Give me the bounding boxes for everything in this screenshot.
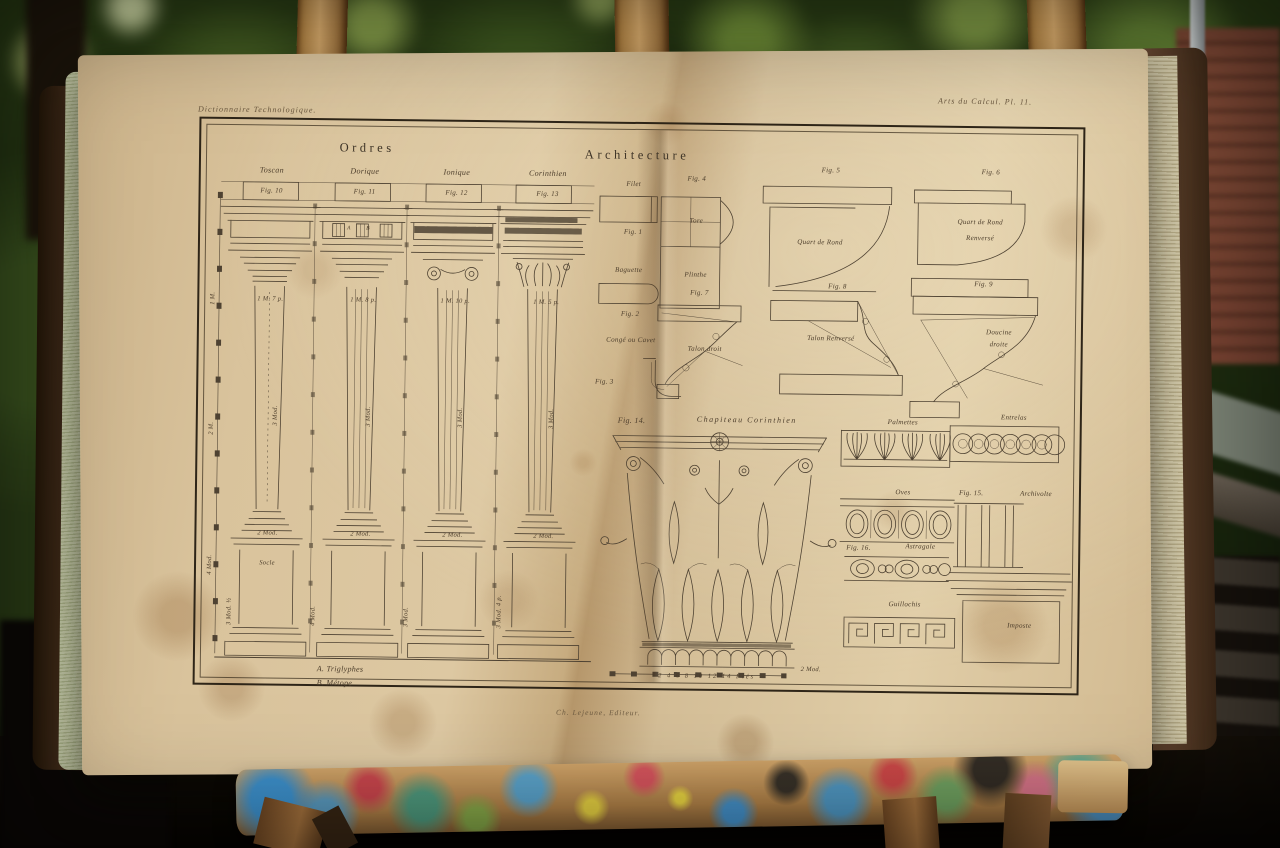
pedestal-dim-toscan: 3 Mod. ½ bbox=[225, 598, 232, 625]
pedestal-dim-corinthien: 3 Mod. 4 p. bbox=[495, 595, 502, 628]
fig-number-16: Fig. 16. bbox=[846, 544, 882, 552]
ornament-label-palmettes: Palmettes bbox=[850, 418, 956, 427]
moulding-label-conge: Congé ou Cavet bbox=[605, 336, 657, 345]
fig-number-10: Fig. 10 bbox=[244, 186, 300, 195]
shaft-dim-corinthien: 3 Mod. bbox=[548, 409, 555, 429]
capital-dim-dorique: 1 M. 8 p. bbox=[331, 296, 395, 304]
fig-number-9: Fig. 9 bbox=[951, 280, 1015, 289]
moulding-label-doucine-2: droite bbox=[963, 340, 1035, 349]
tray-end-block bbox=[1057, 760, 1128, 813]
easel-leg-right bbox=[882, 796, 940, 848]
capital-dim-corinthien: 1 M. 5 p. bbox=[514, 298, 578, 306]
ornament-label-astragale: Astragale bbox=[886, 542, 954, 551]
easel-leg-right-outer bbox=[1003, 793, 1052, 848]
footnote-metope: B. Métope bbox=[317, 678, 437, 688]
ornament-label-guillochis: Guillochis bbox=[862, 600, 948, 609]
pedestal-dim-ionique: 3 Mod. bbox=[402, 607, 409, 627]
engraved-plate-border: Ordres Architecture Toscan Dorique Ioniq… bbox=[193, 117, 1086, 696]
ornament-label-oves: Oves bbox=[867, 488, 939, 497]
order-name-toscan: Toscan bbox=[236, 165, 308, 175]
moulding-label-tore: Tore bbox=[668, 216, 724, 225]
fig14-title: Chapiteau Corinthien bbox=[672, 414, 822, 425]
shaft-dim-toscan: 3 Mod. bbox=[272, 405, 279, 425]
capital-dim-ionique: 1 M. 10 p. bbox=[423, 297, 487, 305]
base-dim-dorique: 2 Mod. bbox=[335, 530, 385, 538]
order-name-ionique: Ionique bbox=[421, 167, 493, 177]
shaft-dim-dorique: 3 Mod. bbox=[365, 406, 372, 426]
ornament-label-entrelas: Entrelas bbox=[960, 413, 1068, 422]
scale-bar-modules: 2 Mod. bbox=[789, 666, 833, 674]
running-head-right: Arts du Calcul. Pl. 11. bbox=[938, 96, 1032, 106]
fig-number-15: Fig. 15. bbox=[959, 489, 995, 497]
fig-number-14: Fig. 14. bbox=[618, 416, 664, 426]
moulding-label-quart-renverse-2: Renversé bbox=[926, 233, 1034, 242]
order-name-corinthien: Corinthien bbox=[512, 168, 584, 178]
fig-number-7: Fig. 7 bbox=[667, 288, 731, 297]
metope-letter-b: B bbox=[366, 226, 370, 232]
base-dim-toscan: 2 Mod. bbox=[242, 529, 292, 537]
footnote-triglyphes: A. Triglyphes bbox=[317, 664, 437, 674]
margin-dim-2: 2 M. bbox=[208, 422, 215, 435]
base-dim-ionique: 2 Mod. bbox=[427, 531, 477, 539]
margin-dim-3: 4 Mod. bbox=[206, 555, 213, 575]
fig-number-5: Fig. 5 bbox=[799, 166, 863, 175]
moulding-label-baguette: Baguette bbox=[596, 265, 662, 274]
moulding-label-plinthe: Plinthe bbox=[668, 270, 724, 279]
shaft-dim-ionique: 3 Mod. bbox=[457, 408, 464, 428]
fig-number-13: Fig. 13 bbox=[520, 190, 576, 199]
moulding-label-talon-renverse: Talon Renversé bbox=[783, 334, 879, 343]
base-dim-corinthien: 2 Mod. bbox=[518, 533, 568, 541]
plate-imprint: Ch. Lejeune, Editeur. bbox=[556, 708, 641, 718]
pedestal-label-socle: Socle bbox=[232, 559, 302, 567]
margin-dim-1: 1 M. bbox=[209, 292, 216, 305]
photo-scene: Dictionnaire Technologique. Arts du Calc… bbox=[0, 0, 1280, 848]
fig-number-4: Fig. 4 bbox=[665, 174, 729, 183]
moulding-label-quart-renverse-1: Quart de Rond bbox=[926, 217, 1034, 226]
ornament-label-imposte: Imposte bbox=[981, 621, 1057, 630]
section-title-orders: Ordres bbox=[302, 140, 432, 157]
moulding-label-doucine-1: Doucine bbox=[963, 328, 1035, 337]
fig-number-3: Fig. 3 bbox=[584, 377, 624, 385]
engraved-plate: Ordres Architecture Toscan Dorique Ioniq… bbox=[200, 124, 1079, 689]
ornament-label-archivolte: Archivolte bbox=[997, 489, 1075, 498]
order-name-dorique: Dorique bbox=[329, 166, 401, 176]
moulding-label-filet: Filet bbox=[605, 180, 663, 189]
moulding-label-quart-de-rond: Quart de Rond bbox=[778, 238, 862, 247]
pedestal-dim-dorique: 4 Mod. bbox=[309, 606, 316, 626]
running-head-left: Dictionnaire Technologique. bbox=[198, 104, 316, 114]
section-title-architecture: Architecture bbox=[552, 147, 722, 164]
capital-dim-toscan: 1 M. 7 p. bbox=[238, 295, 302, 303]
fig-number-8: Fig. 8 bbox=[805, 282, 869, 291]
fig-number-1: Fig. 1 bbox=[604, 228, 662, 237]
fig-number-12: Fig. 12 bbox=[429, 188, 485, 197]
triglyph-letter-a: A bbox=[347, 225, 351, 231]
gutter-fold-shadow bbox=[631, 130, 680, 682]
fig-number-11: Fig. 11 bbox=[337, 187, 393, 196]
moulding-label-talon-droit: Talon droit bbox=[667, 344, 743, 353]
fig-number-2: Fig. 2 bbox=[601, 310, 659, 319]
fig-number-6: Fig. 6 bbox=[959, 168, 1023, 177]
